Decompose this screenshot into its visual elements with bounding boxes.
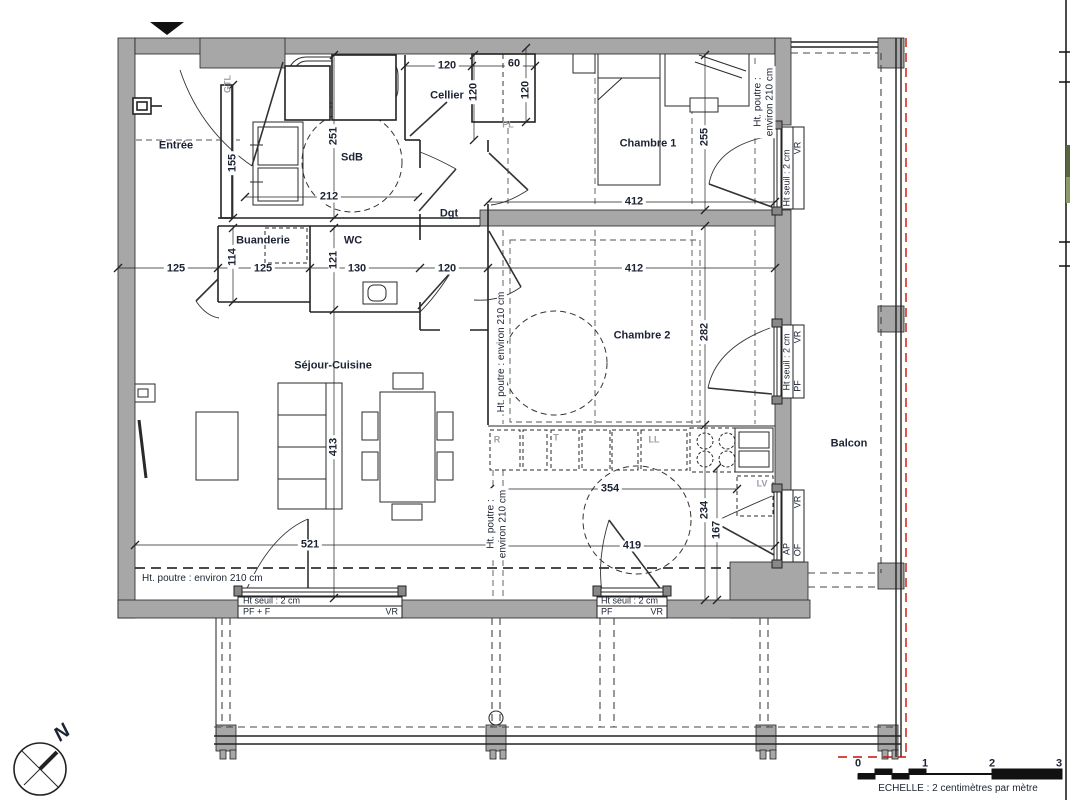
entrance-arrow-icon	[150, 22, 184, 35]
room-label-balcon: Balcon	[831, 439, 868, 450]
tag-t: T	[553, 434, 559, 443]
window-rb-shutter: VR	[794, 496, 803, 509]
window-bl-shutter: VR	[385, 608, 398, 617]
dim-dgt-width: 120	[435, 264, 459, 275]
room-label-dgt: Dgt	[440, 209, 458, 220]
dining-table	[362, 373, 453, 520]
dim-buanderie-width: 125	[251, 264, 275, 275]
vanity-sinks	[250, 122, 303, 205]
tag-gtl: GTL	[224, 75, 233, 93]
dim-closet-depth: 120	[521, 78, 532, 102]
dim-entree-wall: 155	[228, 151, 239, 175]
dim-chambre2-depth: 282	[700, 320, 711, 344]
toilet	[363, 282, 397, 304]
window-bl-type: PF + F	[243, 608, 270, 617]
window-rm-sill: Ht seuil : 2 cm	[783, 333, 792, 390]
room-label-chambre1: Chambre 1	[620, 139, 677, 150]
dim-closet-width: 60	[505, 59, 523, 70]
dim-kitchen-depth: 234	[700, 498, 711, 522]
bed	[573, 53, 660, 185]
dim-chambre2-width: 412	[622, 264, 646, 275]
room-label-entree: Entrée	[159, 141, 193, 152]
dim-kitchen-side: 167	[712, 518, 723, 542]
dim-kitchen-pass: 419	[620, 541, 644, 552]
compass-icon	[14, 743, 66, 795]
dim-sejour-width: 521	[298, 540, 322, 551]
beam-note-chambre1: Ht. poutre : environ 210 cm	[753, 66, 776, 138]
desk	[665, 52, 749, 112]
beam-note-line1: Ht. poutre :	[753, 68, 765, 136]
window-rt-sill: Ht seuil : 2 cm	[783, 149, 792, 206]
floor-plan-drawing	[0, 0, 1070, 800]
tag-washer: LL	[649, 436, 660, 445]
dimension-lines	[114, 44, 779, 604]
window-bl-sill: Ht seuil : 2 cm	[243, 597, 300, 606]
beam-note-kitchen: Ht. poutre : environ 210 cm	[486, 488, 509, 560]
window-bm-type: PF	[601, 608, 613, 617]
tag-fridge: R	[494, 436, 501, 445]
window-bm-shutter: VR	[650, 608, 663, 617]
beam-note-line2: environ 210 cm	[764, 68, 776, 136]
scale-tick-0: 0	[855, 759, 861, 770]
dim-buanderie-depth: 114	[228, 245, 239, 269]
room-label-sejour: Séjour-Cuisine	[294, 361, 372, 372]
window-rm-shutter: VR	[794, 331, 803, 344]
window-rt-shutter: VR	[794, 142, 803, 155]
window-rb-ap: AP	[783, 543, 792, 555]
scale-bar	[858, 769, 1062, 779]
window-rb-of: OF	[794, 544, 803, 557]
room-label-chambre2: Chambre 2	[614, 331, 671, 342]
window-bm-sill: Ht seuil : 2 cm	[601, 597, 658, 606]
kitchen-counter	[488, 426, 775, 516]
room-label-wc: WC	[344, 236, 362, 247]
room-label-sdb: SdB	[341, 153, 363, 164]
tv	[133, 384, 155, 478]
side-table	[196, 412, 238, 480]
beam-note-bottom: Ht. poutre : environ 210 cm	[140, 574, 265, 584]
dim-hall: 125	[164, 264, 188, 275]
dim-wc-width: 130	[345, 264, 369, 275]
dim-sejour-depth: 413	[329, 435, 340, 459]
dim-sdb-turn: 251	[329, 124, 340, 148]
dim-wc-jog: 121	[329, 248, 340, 272]
scale-caption: ECHELLE : 2 centimètres par mètre	[878, 784, 1038, 794]
scale-tick-2: 2	[989, 759, 995, 770]
dim-cellier-depth: 120	[469, 80, 480, 104]
tag-dishwasher: LV	[757, 480, 768, 489]
beam-note-line2: environ 210 cm	[497, 490, 509, 558]
room-label-buanderie: Buanderie	[236, 236, 290, 247]
scale-tick-3: 3	[1056, 759, 1062, 770]
scale-tick-1: 1	[922, 759, 928, 770]
beam-note-line1: Ht. poutre :	[486, 490, 498, 558]
dim-chambre1-width: 412	[622, 197, 646, 208]
dim-cellier-width: 120	[435, 61, 459, 72]
dim-sdb-width: 212	[317, 192, 341, 203]
beam-note-chambre2: Ht. poutre : environ 210 cm	[497, 290, 507, 415]
dim-chambre1-depth: 255	[700, 125, 711, 149]
dim-kitchen-width: 354	[598, 484, 622, 495]
electrical-panel	[133, 98, 162, 114]
window-rm-type: PF	[794, 380, 803, 392]
floor-plan: Entrée SdB Cellier Chambre 1 Buanderie W…	[0, 0, 1070, 800]
tag-placard: PL	[502, 121, 514, 130]
room-label-cellier: Cellier	[430, 91, 464, 102]
page-edge	[1059, 0, 1070, 800]
